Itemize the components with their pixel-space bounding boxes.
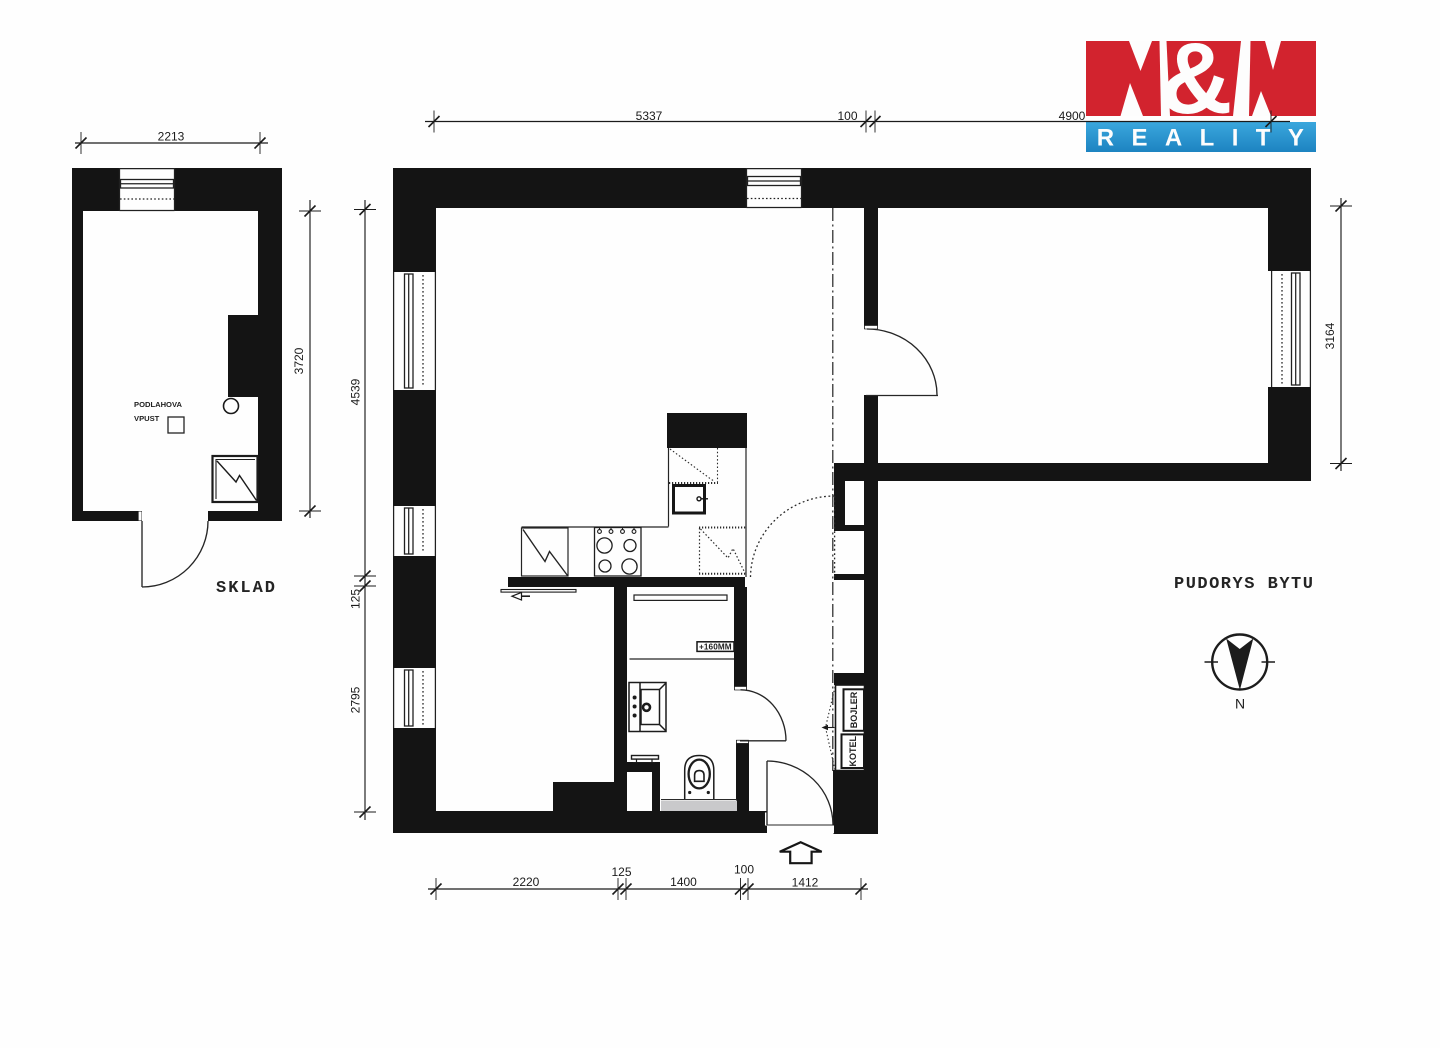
- svg-text:PUDORYS BYTU: PUDORYS BYTU: [1174, 575, 1314, 594]
- svg-text:4900: 4900: [1059, 109, 1086, 123]
- svg-text:100: 100: [837, 109, 857, 123]
- svg-text:1400: 1400: [670, 875, 697, 889]
- svg-text:PODLAHOVA: PODLAHOVA: [134, 400, 182, 409]
- svg-text:1412: 1412: [792, 876, 819, 890]
- svg-text:125: 125: [349, 589, 363, 609]
- svg-text:2220: 2220: [513, 875, 540, 889]
- svg-text:BOJLER: BOJLER: [849, 691, 859, 728]
- svg-text:3720: 3720: [292, 347, 306, 374]
- svg-text:KOTEL: KOTEL: [848, 735, 858, 766]
- svg-text:SKLAD: SKLAD: [216, 579, 277, 598]
- svg-text:5337: 5337: [636, 109, 663, 123]
- svg-text:100: 100: [734, 863, 754, 877]
- svg-text:4539: 4539: [349, 378, 363, 405]
- svg-text:2795: 2795: [349, 686, 363, 713]
- svg-text:VPUST: VPUST: [134, 414, 160, 423]
- svg-text:3164: 3164: [1323, 322, 1337, 349]
- svg-text:&: &: [1160, 23, 1233, 135]
- svg-text:125: 125: [611, 865, 631, 879]
- svg-text:REALITY: REALITY: [1097, 125, 1321, 152]
- svg-text:2213: 2213: [158, 130, 185, 144]
- svg-text:N: N: [1235, 696, 1245, 712]
- svg-text:+160MM: +160MM: [699, 643, 732, 652]
